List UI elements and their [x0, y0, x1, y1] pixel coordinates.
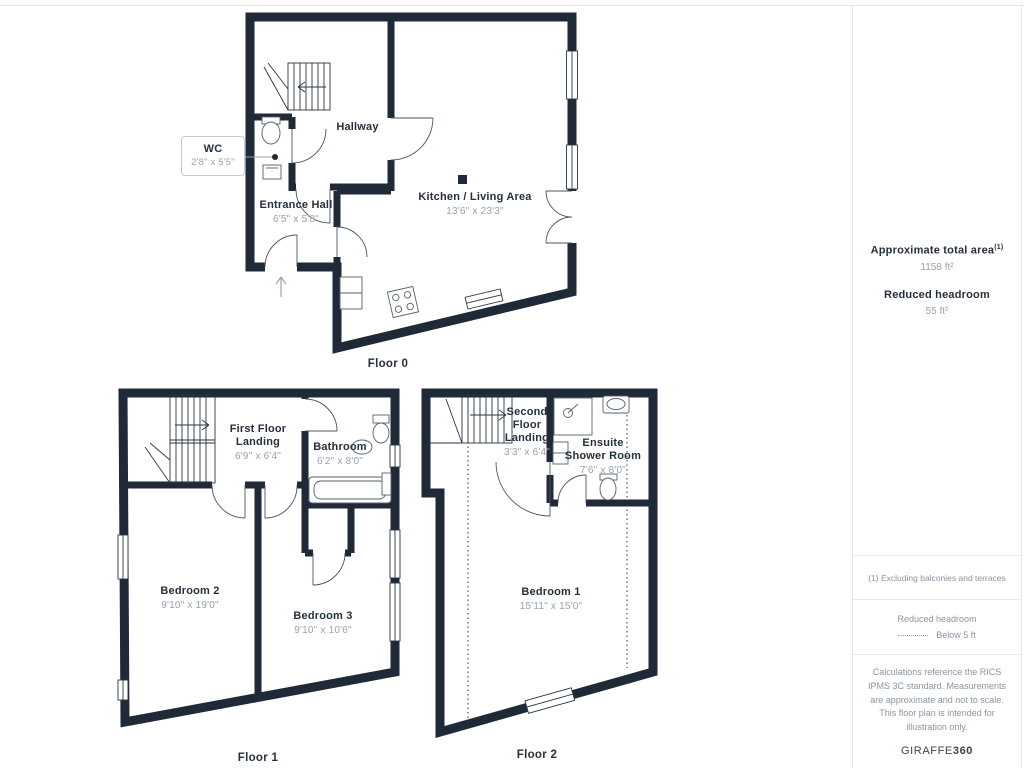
legend-title: Reduced headroom: [897, 614, 976, 624]
room-dims-wc: 2'8" x 5'5": [191, 157, 235, 169]
room-name-bathroom: Bathroom: [290, 441, 390, 454]
sidebar-disclaimer: Calculations reference the RICS IPMS 3C …: [853, 655, 1021, 768]
floor-label-0: Floor 0: [338, 358, 438, 370]
room-label-hallway: Hallway: [315, 121, 400, 134]
room-name-bedroom-1: Bedroom 1: [486, 586, 616, 599]
toilet-icon: [373, 415, 389, 443]
footnote-text: (1) Excluding balconies and terraces: [868, 573, 1006, 583]
room-name-first-floor-landing: First Floor Landing: [214, 423, 302, 449]
room-dims-bedroom-2: 9'10" x 19'0": [130, 600, 250, 613]
room-label-bathroom: Bathroom 6'2" x 8'0": [290, 441, 390, 468]
toilet-icon: [262, 117, 280, 144]
toilet-icon: [600, 474, 617, 500]
room-name-wc: WC: [204, 143, 223, 156]
floor-label-1: Floor 1: [208, 752, 308, 764]
floor-label-2: Floor 2: [487, 749, 587, 761]
sidebar-legend: Reduced headroom Below 5 ft: [853, 600, 1021, 655]
info-sidebar: Approximate total area(1) 1158 ft² Reduc…: [852, 6, 1022, 768]
legend-row: Below 5 ft: [898, 630, 976, 640]
room-name-bedroom-3: Bedroom 3: [263, 610, 383, 623]
bathtub-icon: [309, 477, 391, 503]
room-dims-bathroom: 6'2" x 8'0": [290, 456, 390, 469]
reduced-headroom-value: 55 ft²: [926, 306, 949, 317]
shower-icon: [554, 398, 592, 435]
entry-arrow-icon: [276, 277, 286, 297]
room-label-bedroom-1: Bedroom 1 15'11" x 15'0": [486, 586, 616, 613]
room-label-kitchen-living: Kitchen / Living Area 13'6" x 23'3": [385, 191, 565, 218]
slant-window: [525, 688, 575, 714]
staircase-icon: [264, 63, 330, 110]
total-area-label: Approximate total area(1): [871, 244, 1004, 257]
reduced-headroom-label: Reduced headroom: [884, 289, 990, 301]
room-label-second-floor-landing: Second Floor Landing 3'3" x 6'4": [497, 406, 557, 459]
room-dims-kitchen-living: 13'6" x 23'3": [385, 206, 565, 219]
room-dims-ensuite: 7'6" x 8'0": [561, 465, 645, 478]
room-name-second-floor-landing: Second Floor Landing: [497, 406, 557, 445]
dotted-line-swatch: [898, 635, 928, 636]
room-name-hallway: Hallway: [315, 121, 400, 134]
room-label-bedroom-3: Bedroom 3 9'10" x 10'6": [263, 610, 383, 637]
total-area-value: 1158 ft²: [920, 262, 953, 273]
brand-name: GIRAFFE: [901, 745, 953, 757]
sink-icon: [603, 396, 629, 413]
room-name-ensuite: Ensuite Shower Room: [561, 437, 645, 463]
disclaimer-text: Calculations reference the RICS IPMS 3C …: [865, 666, 1009, 736]
sidebar-summary: Approximate total area(1) 1158 ft² Reduc…: [853, 6, 1021, 556]
sidebar-footnote: (1) Excluding balconies and terraces: [853, 556, 1021, 600]
room-label-entrance-hall: Entrance Hall 6'5" x 5'8": [256, 199, 336, 226]
floorplan-canvas: WC 2'8" x 5'5" Hallway Entrance Hall 6'5…: [0, 0, 852, 768]
giraffe360-logo: GIRAFFE360: [901, 745, 973, 757]
hob-icon: [387, 286, 418, 317]
kitchen-unit-icon: [340, 277, 362, 309]
room-dims-bedroom-1: 15'11" x 15'0": [486, 601, 616, 614]
room-label-ensuite: Ensuite Shower Room 7'6" x 8'0": [561, 437, 645, 477]
room-name-bedroom-2: Bedroom 2: [130, 585, 250, 598]
legend-value: Below 5 ft: [936, 630, 976, 640]
room-dims-bedroom-3: 9'10" x 10'6": [263, 625, 383, 638]
total-area-footnote-marker: (1): [994, 244, 1003, 251]
room-dims-entrance-hall: 6'5" x 5'8": [256, 214, 336, 227]
room-label-bedroom-2: Bedroom 2 9'10" x 19'0": [130, 585, 250, 612]
kitchen-column: [458, 175, 467, 184]
radiator-icon: [382, 473, 391, 495]
room-name-entrance-hall: Entrance Hall: [256, 199, 336, 212]
sink-icon: [263, 165, 281, 179]
room-dims-second-floor-landing: 3'3" x 6'4": [497, 447, 557, 460]
wc-callout: WC 2'8" x 5'5": [181, 136, 245, 176]
total-area-label-text: Approximate total area: [871, 245, 995, 257]
floorplan-page: WC 2'8" x 5'5" Hallway Entrance Hall 6'5…: [0, 0, 1024, 768]
staircase-icon: [145, 395, 215, 483]
room-label-first-floor-landing: First Floor Landing 6'9" x 6'4": [214, 423, 302, 463]
room-name-kitchen-living: Kitchen / Living Area: [385, 191, 565, 204]
floor0-plan: [240, 5, 600, 375]
brand-number: 360: [953, 745, 973, 757]
room-dims-first-floor-landing: 6'9" x 6'4": [214, 451, 302, 464]
